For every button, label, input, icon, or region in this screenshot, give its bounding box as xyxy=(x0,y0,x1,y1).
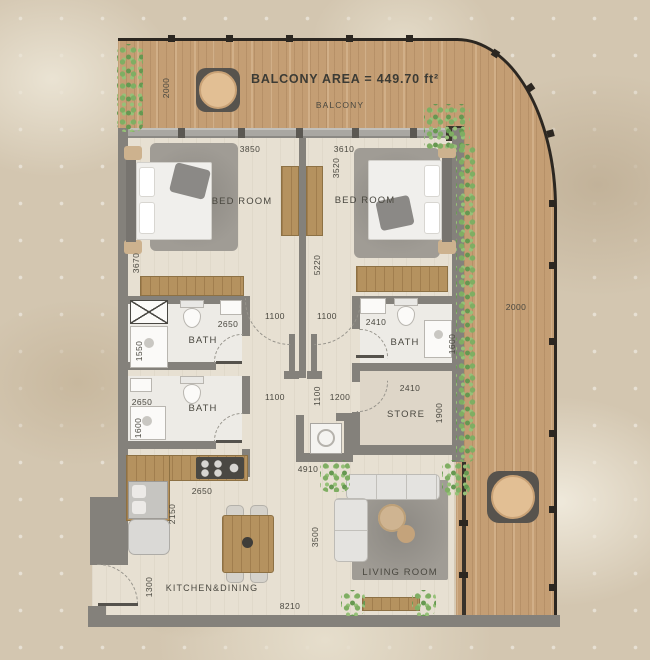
railing-post xyxy=(168,35,175,42)
wardrobe xyxy=(306,166,323,236)
bedroom2-dresser xyxy=(356,266,448,292)
railing-post xyxy=(406,35,413,42)
railing-post xyxy=(226,35,233,42)
window-mullion xyxy=(352,128,359,138)
floor-plan: BALCONY AREA = 449.70 ft² BALCONY 2000 2… xyxy=(0,0,650,660)
bed-headboard xyxy=(126,160,136,242)
bath1-depth-dim: 1550 xyxy=(133,336,145,366)
railing-post xyxy=(549,506,556,513)
window-mullion xyxy=(296,128,303,138)
total-width-dim: 8210 xyxy=(272,601,308,612)
railing-post xyxy=(549,262,556,269)
wall-niche-stub xyxy=(336,413,352,421)
coffee-table xyxy=(397,525,415,543)
bath2-door-leaf xyxy=(356,355,384,358)
railing-post xyxy=(546,129,555,138)
bedroom2-width-dim: 3610 xyxy=(326,144,362,155)
wall-left-block xyxy=(90,497,128,565)
stove xyxy=(196,457,244,479)
bath1-door-leaf xyxy=(216,361,242,364)
railing-post xyxy=(346,35,353,42)
window-mullion xyxy=(178,128,185,138)
balcony-depth-dim: 2000 xyxy=(160,73,172,103)
shaft-box xyxy=(130,300,168,324)
kitchen-label: KITCHEN&DINING xyxy=(152,583,272,593)
plant xyxy=(341,590,365,616)
deck-width-dim: 2000 xyxy=(498,302,534,313)
plant xyxy=(442,460,470,496)
bath1-label: BATH xyxy=(178,335,228,346)
kitchen-counter-width-dim: 2650 xyxy=(184,486,220,497)
wall-bottom-left-corner xyxy=(88,606,106,621)
hall-length-dim: 5220 xyxy=(311,250,323,280)
bedroom2-label: BED ROOM xyxy=(330,195,400,206)
table-decor xyxy=(242,537,253,548)
living-label: LIVING ROOM xyxy=(350,567,450,578)
bed-headboard xyxy=(442,158,452,242)
bath3-door-leaf xyxy=(216,440,242,443)
store-width-dim: 2410 xyxy=(392,383,428,394)
bedroom1-depth-dim: 3670 xyxy=(130,248,142,278)
bedroom1-label: BED ROOM xyxy=(207,196,277,207)
kitchen-sink-bowl xyxy=(132,501,146,514)
bath3-width-dim: 2650 xyxy=(124,397,160,408)
railing-post xyxy=(286,35,293,42)
wall-bath3-east xyxy=(242,376,250,414)
nightstand xyxy=(124,146,142,160)
bed-pillow xyxy=(139,202,155,234)
shower-drain xyxy=(144,338,154,348)
hall-dim: 1100 xyxy=(257,392,293,403)
balcony-area-title: BALCONY AREA = 449.70 ft² xyxy=(230,72,460,86)
washing-machine-door xyxy=(317,429,335,447)
entry-door-leaf xyxy=(98,603,138,606)
hall-dim: 1100 xyxy=(309,311,345,322)
store-label: STORE xyxy=(376,409,436,420)
railing-post xyxy=(549,430,556,437)
bed-pillow xyxy=(139,167,155,197)
kitchen-sink-bowl xyxy=(132,485,146,498)
living-depth-dim: 3500 xyxy=(309,522,321,552)
plant xyxy=(320,460,350,492)
nightstand xyxy=(438,240,456,254)
sofa-top xyxy=(346,474,440,500)
hall-dim: 1200 xyxy=(322,392,358,403)
railing-post xyxy=(549,338,556,345)
bed-pillow xyxy=(424,165,440,197)
wall-store-south xyxy=(352,445,452,455)
window-mullion xyxy=(410,128,417,138)
sofa-left xyxy=(334,498,368,562)
bath3-label: BATH xyxy=(178,403,228,414)
wall-bottom xyxy=(88,615,560,627)
toilet-tank xyxy=(394,298,418,306)
bedroom1-dresser xyxy=(140,276,244,296)
outdoor-table xyxy=(199,71,237,109)
kitchen-counter-depth-dim: 2150 xyxy=(166,499,178,529)
toilet-tank xyxy=(180,376,204,384)
bath3-depth-dim: 1600 xyxy=(132,413,144,443)
sink xyxy=(220,300,242,315)
window-wall xyxy=(118,128,454,138)
wall-stub-right-foot xyxy=(307,371,322,379)
bath1-width-dim: 2650 xyxy=(210,319,246,330)
plant xyxy=(412,590,436,616)
bed-pillow xyxy=(424,202,440,234)
sink xyxy=(130,378,152,392)
plant xyxy=(117,44,143,132)
bath2-label: BATH xyxy=(380,337,430,348)
bedroom1-width-dim: 3850 xyxy=(232,144,268,155)
shower-drain xyxy=(434,330,443,339)
bath2-width-dim: 2410 xyxy=(358,317,394,328)
wall-stub-left-foot xyxy=(284,371,299,379)
wardrobe-depth-dim: 3520 xyxy=(330,153,342,183)
wall-store-west-upper xyxy=(352,371,360,382)
toilet-tank xyxy=(180,300,204,308)
wardrobe xyxy=(281,166,299,236)
railing-post xyxy=(549,200,556,207)
outdoor-table xyxy=(491,475,535,519)
wall-center xyxy=(299,138,306,378)
sink xyxy=(360,298,386,314)
balcony-label: BALCONY xyxy=(300,100,380,110)
sliding-door-post xyxy=(459,572,468,578)
railing-post xyxy=(549,584,556,591)
plant xyxy=(456,144,476,462)
sliding-door-post xyxy=(459,520,468,526)
wall-bath2-south xyxy=(352,363,452,371)
store-depth-dim: 1900 xyxy=(433,398,445,428)
window-mullion xyxy=(238,128,245,138)
hall-dim: 1100 xyxy=(257,311,293,322)
fridge xyxy=(128,519,170,555)
wall-store-west-lower xyxy=(352,412,360,445)
